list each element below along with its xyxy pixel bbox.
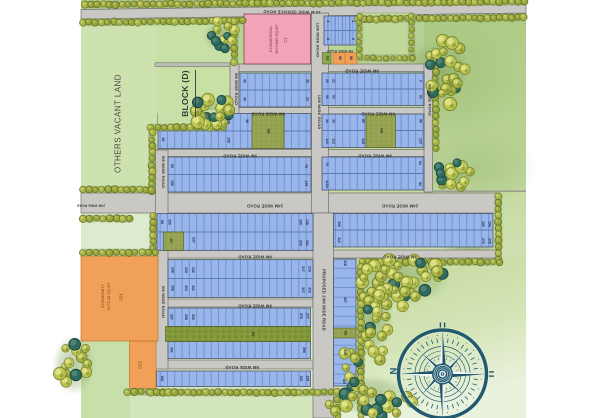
svg-text:9M WIDE ROAD: 9M WIDE ROAD [345,68,379,73]
svg-text:9: 9 [419,80,423,82]
svg-text:64: 64 [418,161,422,165]
svg-text:33: 33 [332,119,336,123]
svg-text:340: 340 [160,376,164,382]
svg-text:217: 217 [301,266,305,272]
svg-text:259: 259 [191,314,195,320]
svg-text:276: 276 [299,313,303,319]
svg-text:G3: G3 [326,56,330,61]
svg-text:195: 195 [481,221,485,227]
svg-text:C1: C1 [283,37,288,43]
svg-text:105: 105 [227,118,231,124]
svg-text:233: 233 [184,267,188,273]
svg-text:238: 238 [171,267,175,273]
svg-text:96: 96 [161,138,165,142]
svg-text:49: 49 [243,97,247,101]
svg-text:24M WIDE ROAD: 24M WIDE ROAD [382,203,418,208]
svg-text:95: 95 [170,164,174,168]
svg-text:123: 123 [419,138,423,144]
svg-text:150: 150 [299,219,303,225]
svg-text:237: 237 [192,237,196,243]
svg-text:302: 302 [191,285,195,291]
svg-text:9M WIDE ROAD: 9M WIDE ROAD [383,254,417,259]
svg-text:317: 317 [301,287,305,293]
svg-text:32: 32 [306,79,310,83]
svg-text:98: 98 [160,220,164,224]
svg-text:COMMUNITY: COMMUNITY [100,284,105,308]
svg-text:63: 63 [419,95,423,99]
svg-text:9M WIDE ROAD: 9M WIDE ROAD [361,111,395,116]
svg-text:9M WIDE ROAD: 9M WIDE ROAD [326,49,353,53]
svg-text:G8: G8 [267,129,271,134]
svg-text:9M WIDE ROAD: 9M WIDE ROAD [238,255,272,260]
svg-text:51: 51 [332,95,336,99]
svg-text:310: 310 [337,237,341,243]
svg-text:9M WIDE ROAD: 9M WIDE ROAD [234,73,239,105]
svg-text:G2: G2 [344,331,348,336]
svg-text:232: 232 [191,267,195,273]
svg-text:75: 75 [304,164,308,168]
svg-text:278: 278 [306,376,310,382]
svg-text:179: 179 [304,181,308,187]
svg-text:N: N [389,367,400,374]
svg-text:8771.32 SQ.MT: 8771.32 SQ.MT [106,282,111,310]
svg-text:23: 23 [306,97,310,101]
svg-text:277: 277 [306,313,310,319]
svg-text:203: 203 [299,240,303,246]
svg-text:24M WIDE ROAD: 24M WIDE ROAD [247,204,283,209]
svg-text:9M WIDE ROAD: 9M WIDE ROAD [161,156,166,188]
svg-text:C02: C02 [138,360,143,368]
svg-text:A/5: A/5 [342,379,346,384]
svg-text:159: 159 [170,180,174,186]
svg-text:258: 258 [184,314,188,320]
svg-text:G7: G7 [169,239,173,244]
svg-text:9: 9 [351,38,355,40]
svg-text:308: 308 [337,221,341,227]
svg-text:12 M WIDE SERVICE ROAD: 12 M WIDE SERVICE ROAD [263,9,321,15]
svg-text:320: 320 [299,376,303,382]
svg-text:24M WIDE ROAD: 24M WIDE ROAD [76,203,105,207]
svg-text:G1: G1 [251,332,255,337]
svg-text:194: 194 [488,221,492,227]
svg-text:276: 276 [488,238,492,244]
svg-text:327: 327 [343,297,347,303]
svg-text:267: 267 [170,314,174,320]
svg-text:9M WIDE ROAD: 9M WIDE ROAD [358,153,392,158]
svg-text:270: 270 [481,238,485,244]
svg-text:115: 115 [325,138,329,144]
svg-text:38: 38 [245,119,249,123]
svg-text:159: 159 [168,219,172,225]
svg-text:368: 368 [302,347,306,353]
svg-text:112: 112 [332,138,336,144]
svg-text:9M WIDE ROAD: 9M WIDE ROAD [161,286,166,318]
svg-text:69: 69 [361,119,365,123]
svg-text:9M WIDE ROAD: 9M WIDE ROAD [225,365,259,370]
svg-text:9M WIDE ROAD: 9M WIDE ROAD [251,111,285,116]
svg-text:OTHERS VACANT LAND: OTHERS VACANT LAND [114,74,123,173]
svg-text:66: 66 [419,119,423,123]
svg-text:BLOCK (D): BLOCK (D) [180,70,190,117]
svg-text:254: 254 [305,240,309,246]
svg-text:208: 208 [171,285,175,291]
svg-text:12M WIDE ROAD: 12M WIDE ROAD [317,95,322,130]
svg-text:34: 34 [325,119,329,123]
svg-text:3672.665 SQ.MT: 3672.665 SQ.MT [274,24,279,54]
svg-text:106: 106 [227,137,231,143]
svg-text:86: 86 [349,56,353,60]
svg-text:118: 118 [361,138,365,144]
svg-text:G9: G9 [380,128,384,133]
svg-text:1: 1 [351,21,355,23]
svg-text:9M WIDE ROAD: 9M WIDE ROAD [223,154,257,159]
svg-text:4: 4 [326,21,330,23]
svg-text:318: 318 [343,260,347,266]
svg-text:303: 303 [184,285,188,291]
svg-text:8: 8 [326,38,330,40]
svg-text:341: 341 [170,347,174,353]
svg-text:21: 21 [332,79,336,83]
svg-text:40: 40 [243,79,247,83]
svg-text:COMMERCIAL: COMMERCIAL [268,25,273,52]
svg-text:138: 138 [305,219,309,225]
svg-text:85: 85 [338,56,342,60]
svg-text:50: 50 [325,95,329,99]
svg-text:112A: 112A [325,180,329,188]
svg-text:216: 216 [308,266,312,272]
svg-text:9M WIDE ROAD: 9M WIDE ROAD [238,304,272,309]
svg-text:9M WIDE ROAD: 9M WIDE ROAD [427,84,432,116]
svg-text:348: 348 [343,349,347,355]
svg-text:84: 84 [418,182,422,186]
svg-text:12M WIDE ROAD: 12M WIDE ROAD [315,23,320,58]
svg-text:PROPOSED 24M WIDE ROAD: PROPOSED 24M WIDE ROAD [322,269,327,331]
svg-text:310: 310 [308,287,312,293]
svg-text:22: 22 [325,79,329,83]
svg-text:74: 74 [325,162,329,166]
svg-text:C01: C01 [119,292,124,300]
